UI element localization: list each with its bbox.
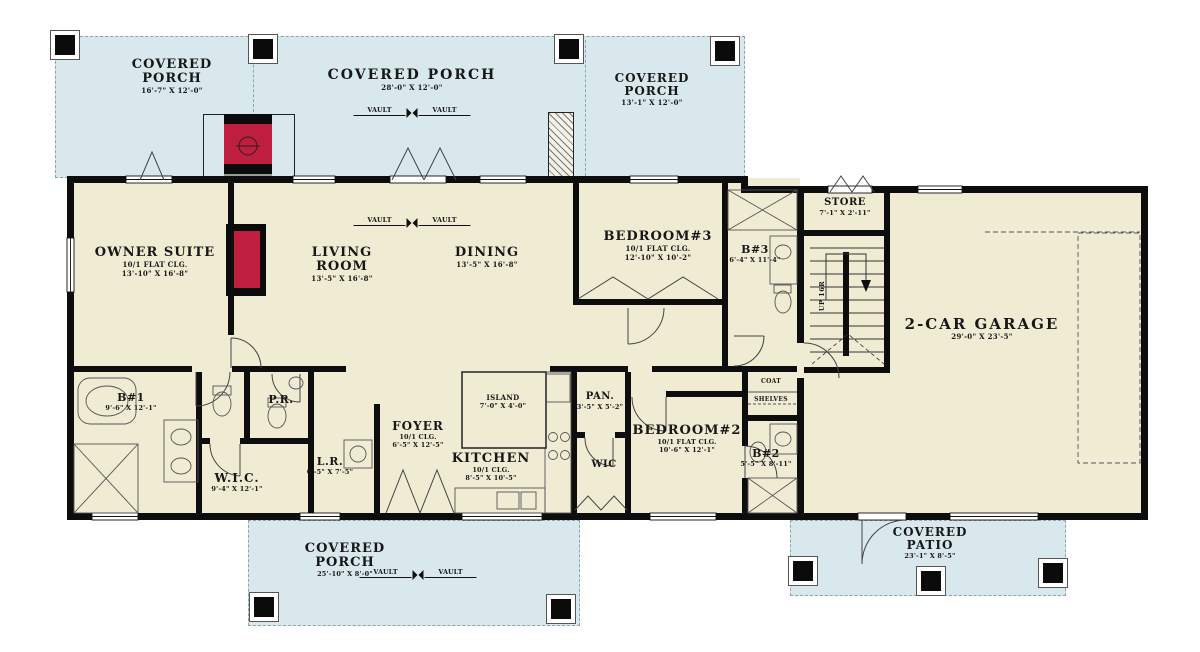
label-shelves: SHELVES: [754, 397, 788, 403]
label-living-room: LIVING ROOM 13'-5" X 16'-8": [311, 246, 372, 283]
label-wic1: W.I.C. 9'-4" X 12'-1": [211, 472, 262, 493]
vault-annotation-living: VAULTVAULT: [354, 216, 471, 226]
porch-fireplace-firebox: [224, 124, 272, 164]
label-laundry: L.R. 6'-5" X 7'-5": [307, 456, 353, 476]
garage-floor-area: [800, 190, 1144, 516]
label-covered-porch-top-left: COVERED PORCH 16'-7" X 12'-0": [132, 58, 212, 95]
patio-post: [788, 556, 818, 586]
porch-post: [248, 34, 278, 64]
label-covered-patio: COVERED PATIO 23'-1" X 8'-5": [893, 526, 968, 560]
label-dining: DINING 13'-5" X 16'-8": [455, 246, 519, 269]
porch-fireplace-top: [224, 114, 272, 124]
label-garage: 2-CAR GARAGE 29'-0" X 23'-5": [905, 316, 1060, 341]
label-kitchen: KITCHEN 10/1 CLG. 8'-5" X 10'-5": [452, 452, 530, 482]
label-island: ISLAND 7'-0" X 4'-0": [480, 394, 526, 410]
patio-post: [916, 566, 946, 596]
porch-post: [710, 36, 740, 66]
patio-post: [1038, 558, 1068, 588]
label-bath2: B#2 5'-5" X 8'-11": [740, 448, 791, 468]
label-bedroom3: BEDROOM#3 10/1 FLAT CLG. 12'-10" X 10'-2…: [604, 230, 713, 261]
label-bedroom2: BEDROOM#2 10/1 FLAT CLG. 10'-6" X 12'-1": [633, 424, 742, 454]
label-covered-porch-top-middle: COVERED PORCH 28'-0" X 12'-0": [328, 68, 497, 92]
label-coat: COAT: [761, 379, 781, 385]
porch-post: [50, 30, 80, 60]
porch-post: [546, 594, 576, 624]
porch-post: [554, 34, 584, 64]
label-covered-porch-top-right: COVERED PORCH 13'-1" X 12'-0": [615, 72, 690, 106]
vault-annotation-bottom-porch: VAULTVAULT: [360, 568, 477, 578]
stone-column-hatch: [548, 112, 574, 179]
label-foyer: FOYER 10/1 CLG. 6'-5" X 12'-5": [392, 420, 444, 449]
label-stairs-up: UP 16R: [818, 281, 826, 311]
porch-fireplace-base: [224, 164, 272, 174]
label-owner-suite: OWNER SUITE 10/1 FLAT CLG. 13'-10" X 16'…: [95, 246, 215, 277]
vault-annotation-porch: VAULTVAULT: [354, 106, 471, 116]
label-bath3: B#3 6'-4" X 11'-4": [729, 244, 780, 264]
owner-suite-fireplace-firebox: [232, 231, 260, 288]
label-pantry: PAN. 3'-5" X 5'-2": [577, 392, 623, 411]
porch-divider-line: [585, 40, 586, 176]
label-powder-room: P.R.: [268, 394, 293, 406]
porch-post: [249, 592, 279, 622]
floor-plan: COVERED PORCH 16'-7" X 12'-0" COVERED PO…: [0, 0, 1200, 652]
label-bath1: B#1 9'-6" X 12'-1": [105, 392, 156, 412]
label-store: STORE 7'-1" X 2'-11": [819, 198, 870, 217]
label-wic2: WIC: [591, 460, 616, 471]
porch-fireplace-hearth: [224, 174, 272, 181]
